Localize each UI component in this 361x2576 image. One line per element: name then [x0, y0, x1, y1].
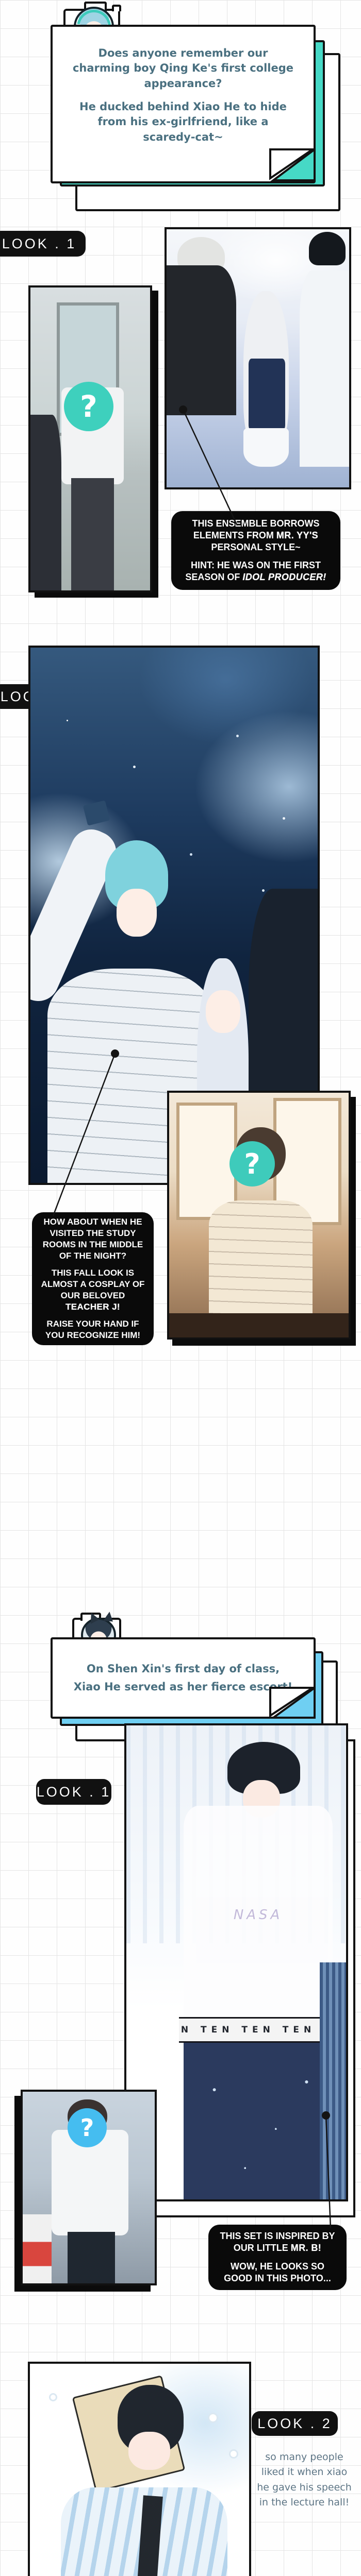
question-glyph: ?: [80, 2114, 94, 2142]
callout-3-paragraph-2: WOW, HE LOOKS SO GOOD IN THIS PHOTO...: [216, 2261, 339, 2284]
folded-corner-icon: [269, 148, 316, 181]
callout-2-text: THIS FALL LOOK IS ALMOST A COSPLAY OF OU…: [41, 1268, 145, 1300]
note-card-1-line-1: Does anyone remember our charming boy Qi…: [72, 46, 294, 91]
panel-4-flowers: [51, 2395, 56, 2400]
hidden-face-question-icon: ?: [64, 382, 113, 431]
callout-2-bold: TEACHER J!: [65, 1302, 120, 1312]
note-card-1-line-2: He ducked behind Xiao He to hide from hi…: [72, 99, 294, 145]
photo-1-bystander: [30, 415, 61, 590]
callout-2-paragraph-2: THIS FALL LOOK IS ALMOST A COSPLAY OF OU…: [39, 1267, 146, 1312]
panel-1-girl-skirt: [243, 428, 289, 467]
callout-inspired-set-note: THIS SET IS INSPIRED BY OUR LITTLE MR. B…: [208, 2225, 347, 2290]
callout-3-bold: MR. B!: [291, 2243, 321, 2253]
reference-photo-study-room: ?: [167, 1091, 351, 1340]
panel-3-belt-text: TEN TEN TEN TEN TEN: [179, 2025, 337, 2035]
panel-1-girl-vest: [249, 359, 285, 431]
hidden-face-question-icon: ?: [229, 1141, 275, 1187]
callout-1-italic: IDOL PRODUCER!: [242, 572, 326, 582]
callout-1-text-post: PERSONAL STYLE~: [211, 542, 300, 552]
panel-1-white-shirt-boy: [300, 270, 351, 467]
comic-panel-white-suit: NASA TEN TEN TEN TEN TEN: [124, 1723, 348, 2201]
reference-photo-airport-1: ?: [28, 285, 152, 592]
note-card-2-line-2: Xiao He served as her fierce escort!: [70, 1680, 297, 1694]
callout-1-paragraph-2: HINT: HE WAS ON THE FIRST SEASON OF IDOL…: [178, 560, 333, 583]
photo-3-signage: [23, 2214, 52, 2283]
callout-study-room-note: HOW ABOUT WHEN HE VISITED THE STUDY ROOM…: [32, 1212, 154, 1345]
look-1-label-second: LOOK . 1: [36, 1779, 111, 1805]
panel-3-sparkle-jeans: [184, 2043, 337, 2199]
panel-3-logo-belt: TEN TEN TEN TEN TEN: [179, 2017, 337, 2043]
callout-2-paragraph-3: RAISE YOUR HAND IF YOU RECOGNIZE HIM!: [39, 1318, 146, 1341]
callout-ensemble-note: THIS ENSEMBLE BORROWS ELEMENTS FROM MR. …: [171, 511, 340, 590]
comic-lookbook-page: Does anyone remember our charming boy Qi…: [0, 0, 361, 2576]
panel-3-shirt-text: NASA: [234, 1907, 283, 1923]
panel-2-girl-face: [206, 990, 240, 1033]
look-2-label-second: LOOK . 2: [252, 2411, 338, 2436]
photo-2-bench: [169, 1313, 349, 1338]
panel-2-stars: [67, 720, 68, 721]
camera-shutter-bump: [112, 5, 121, 11]
hidden-face-question-icon: ?: [68, 2108, 107, 2147]
question-glyph: ?: [244, 1148, 260, 1180]
panel-4-face: [128, 2432, 170, 2470]
callout-2-paragraph-1: HOW ABOUT WHEN HE VISITED THE STUDY ROOM…: [39, 1216, 146, 1261]
callout-1-paragraph-1: THIS ENSEMBLE BORROWS ELEMENTS FROM MR. …: [178, 518, 333, 553]
look-1-label-text: LOOK . 1: [2, 236, 77, 252]
look-2-label-text: LOOK . 2: [257, 2416, 332, 2432]
look-1-label: LOOK . 1: [0, 231, 86, 257]
callout-1-bold: MR. YY'S: [276, 530, 318, 540]
photo-1-ripped-jeans: [71, 478, 114, 590]
comic-panel-trio: [165, 227, 351, 489]
reference-photo-airport-2: ?: [21, 2090, 157, 2285]
panel-2-boy-face: [117, 889, 157, 937]
question-glyph: ?: [80, 389, 97, 424]
comic-panel-lecture-outfit: [28, 2362, 251, 2576]
callout-3-paragraph-1: THIS SET IS INSPIRED BY OUR LITTLE MR. B…: [216, 2230, 339, 2254]
look-1-label-text: LOOK . 1: [37, 1784, 111, 1800]
panel-1-black-tee-boy: [165, 265, 236, 415]
note-card-1: Does anyone remember our charming boy Qi…: [51, 25, 340, 213]
panel-3-white-shirt: NASA: [184, 1806, 333, 2024]
handwritten-side-note: so many people liked it when xiao he gav…: [255, 2450, 353, 2511]
panel-3-stripe-band: [320, 1962, 346, 2199]
photo-3-dark-pants: [68, 2232, 115, 2283]
cat-ear-right-icon: [102, 1611, 115, 1623]
note-card-2-line-1: On Shen Xin's first day of class,: [70, 1662, 297, 1676]
folded-corner-icon: [269, 1687, 316, 1719]
panel-1-black-cap: [309, 232, 346, 265]
